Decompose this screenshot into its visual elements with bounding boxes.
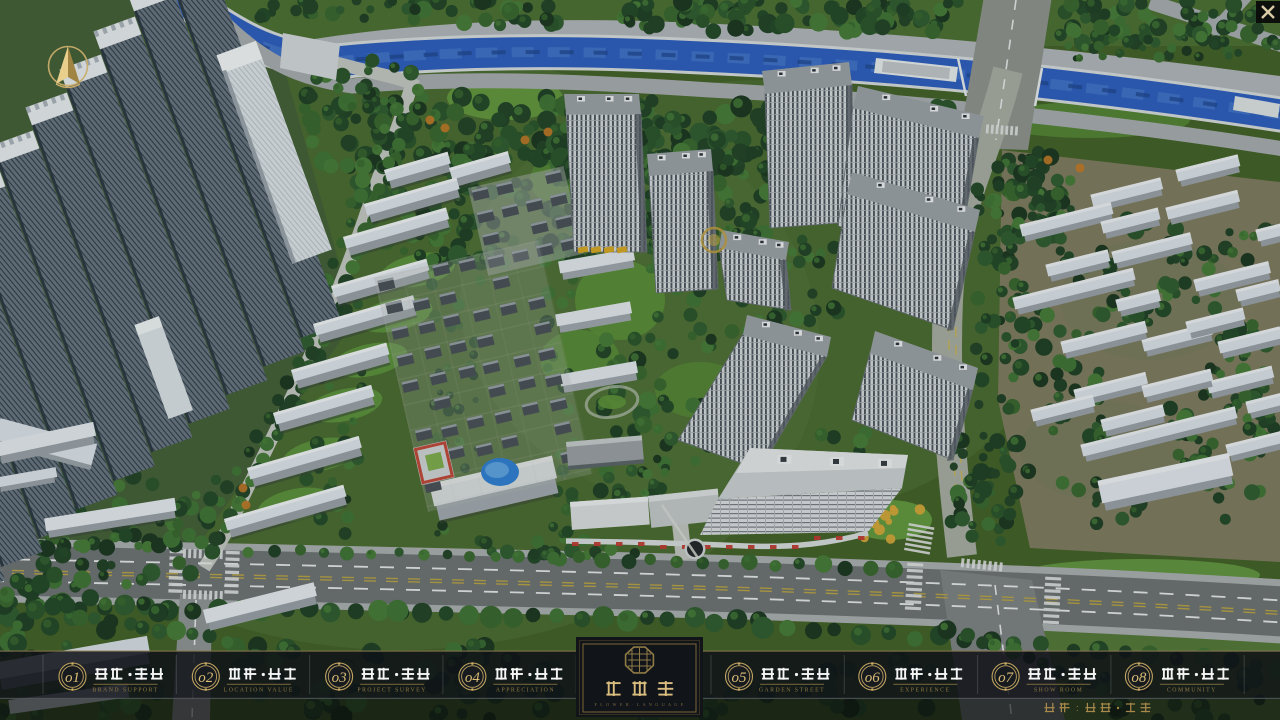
svg-text:BRAND SUPPORT: BRAND SUPPORT — [92, 688, 158, 694]
svg-text:APPRECIATION: APPRECIATION — [496, 688, 555, 694]
svg-text:COMMUNITY: COMMUNITY — [1167, 688, 1217, 694]
svg-text:o4: o4 — [465, 670, 481, 686]
svg-text:SHOW ROOM: SHOW ROOM — [1034, 688, 1083, 694]
svg-text:o2: o2 — [198, 670, 214, 686]
svg-text:GARDEN STREET: GARDEN STREET — [759, 688, 825, 694]
svg-text:o5: o5 — [732, 670, 748, 686]
svg-text:o1: o1 — [65, 670, 80, 686]
svg-text:EXPERIENCE: EXPERIENCE — [900, 688, 950, 694]
svg-text::: : — [1076, 703, 1079, 713]
svg-text:o7: o7 — [998, 670, 1015, 686]
svg-text:F L O W E R · L A N G U A G E: F L O W E R · L A N G U A G E — [595, 702, 685, 707]
svg-text:o3: o3 — [332, 670, 347, 686]
svg-text:o6: o6 — [865, 670, 881, 686]
svg-text:LOCATION VALUE: LOCATION VALUE — [224, 688, 294, 694]
svg-text:o8: o8 — [1131, 670, 1147, 686]
svg-text:PROJECT SURVEY: PROJECT SURVEY — [357, 688, 427, 694]
